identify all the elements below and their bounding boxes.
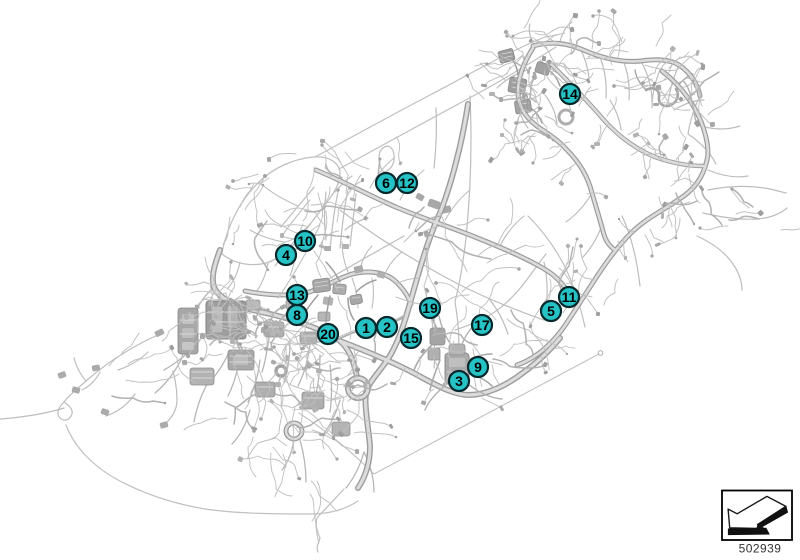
svg-text:20: 20 <box>320 326 336 342</box>
svg-text:17: 17 <box>474 317 490 333</box>
svg-text:5: 5 <box>547 303 555 319</box>
svg-text:13: 13 <box>289 287 305 303</box>
svg-text:3: 3 <box>455 373 463 389</box>
svg-text:2: 2 <box>383 319 391 335</box>
svg-text:10: 10 <box>297 233 313 249</box>
svg-text:1: 1 <box>362 320 370 336</box>
svg-text:9: 9 <box>474 359 482 375</box>
svg-text:19: 19 <box>422 300 438 316</box>
svg-text:12: 12 <box>399 175 415 191</box>
svg-text:502939: 502939 <box>739 542 782 556</box>
svg-text:8: 8 <box>293 307 301 323</box>
svg-text:4: 4 <box>282 247 290 263</box>
svg-text:15: 15 <box>403 330 419 346</box>
svg-text:6: 6 <box>382 175 390 191</box>
svg-text:14: 14 <box>562 86 578 102</box>
svg-text:11: 11 <box>562 289 577 305</box>
